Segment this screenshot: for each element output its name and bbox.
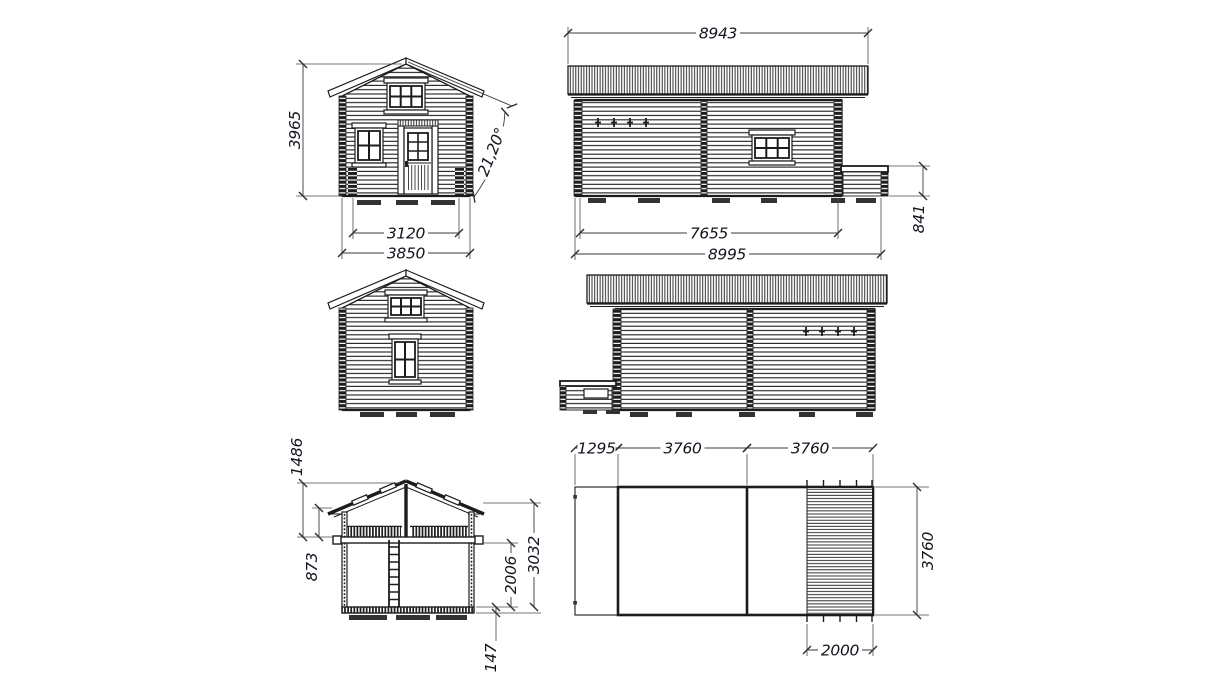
foundation-block xyxy=(396,200,418,205)
loft-beam-end xyxy=(475,536,483,544)
foundation-block xyxy=(430,412,455,417)
foundation-block xyxy=(396,615,430,620)
door-handle xyxy=(405,161,408,167)
dim-plan-deck-depth: 2000 xyxy=(821,642,860,660)
foundation-block xyxy=(676,412,692,417)
dim-side-roof-length: 8943 xyxy=(699,25,737,43)
foundation-block xyxy=(856,412,873,417)
dim-plan-width: 3760 xyxy=(919,531,937,570)
front-base-band-left xyxy=(348,168,357,195)
front-corner-logs-left xyxy=(339,96,346,196)
foundation-block xyxy=(349,615,387,620)
side2-wall xyxy=(615,309,875,410)
dim-front-overall-width: 3850 xyxy=(387,245,426,263)
foundation-block xyxy=(799,412,815,417)
loft-railing-left xyxy=(348,527,401,537)
front-base-band-right xyxy=(455,168,464,195)
dim-section-clear-height: 2006 xyxy=(502,555,520,594)
front-door xyxy=(398,120,438,194)
side2-terrace xyxy=(560,381,616,410)
dim-section-inner-height: 3032 xyxy=(525,536,543,574)
plan-deck-hatch xyxy=(807,488,872,614)
loft-floor xyxy=(336,537,480,543)
foundation-block xyxy=(739,412,755,417)
side-window xyxy=(749,130,795,165)
side-terrace xyxy=(841,166,888,196)
plan-porch xyxy=(575,487,618,615)
foundation-block xyxy=(638,198,660,203)
partition-log-joint xyxy=(747,309,753,410)
foundation-block xyxy=(606,410,620,414)
dim-plan-room2-length: 3760 xyxy=(791,440,830,458)
front-corner-logs-right xyxy=(466,96,473,196)
foundation-block xyxy=(357,200,381,205)
dim-side-wall-length: 7655 xyxy=(690,225,728,243)
blueprint-canvas: 3965 21,20° 3120 3850 xyxy=(0,0,1214,683)
front-window-left xyxy=(352,123,386,167)
rear-window-upper xyxy=(385,290,427,322)
dim-side-terrace-height: 841 xyxy=(910,205,928,234)
rear-window-lower xyxy=(389,334,421,384)
loft-beam-end xyxy=(333,536,341,544)
porch-post xyxy=(573,495,577,499)
foundation-block xyxy=(712,198,730,203)
foundation-block xyxy=(431,200,455,205)
front-window-upper xyxy=(384,78,428,114)
loft-railing-right xyxy=(411,527,467,537)
foundation-block xyxy=(761,198,777,203)
foundation-block xyxy=(630,412,648,417)
dim-front-total-height: 3965 xyxy=(286,111,304,149)
dim-plan-porch-depth: 1295 xyxy=(577,440,615,458)
foundation-block xyxy=(588,198,606,203)
dim-section-knee-height: 873 xyxy=(303,553,321,582)
dim-side-overall-length: 8995 xyxy=(708,246,746,264)
corner-logs xyxy=(574,100,582,196)
porch-post xyxy=(573,601,577,605)
section-floor xyxy=(342,607,474,613)
corner-logs xyxy=(466,308,473,410)
corner-logs xyxy=(867,309,875,410)
foundation-block xyxy=(436,615,467,620)
corner-logs xyxy=(339,308,346,410)
corner-logs xyxy=(834,100,842,196)
dim-section-floor-thickness: 147 xyxy=(482,643,500,672)
side-roof xyxy=(568,66,868,94)
foundation-block xyxy=(856,198,876,203)
technical-drawing-svg: 3965 21,20° 3120 3850 xyxy=(0,0,1214,683)
partition-log-joint xyxy=(701,100,707,196)
foundation-block xyxy=(360,412,384,417)
dim-front-inner-width: 3120 xyxy=(387,225,426,243)
side-wall xyxy=(575,100,842,196)
foundation-block xyxy=(583,410,597,414)
corner-logs xyxy=(613,309,621,410)
foundation-block xyxy=(396,412,417,417)
dim-section-ridge-height: 1486 xyxy=(288,437,306,476)
side2-roof xyxy=(587,275,887,303)
dim-plan-room1-length: 3760 xyxy=(663,440,702,458)
